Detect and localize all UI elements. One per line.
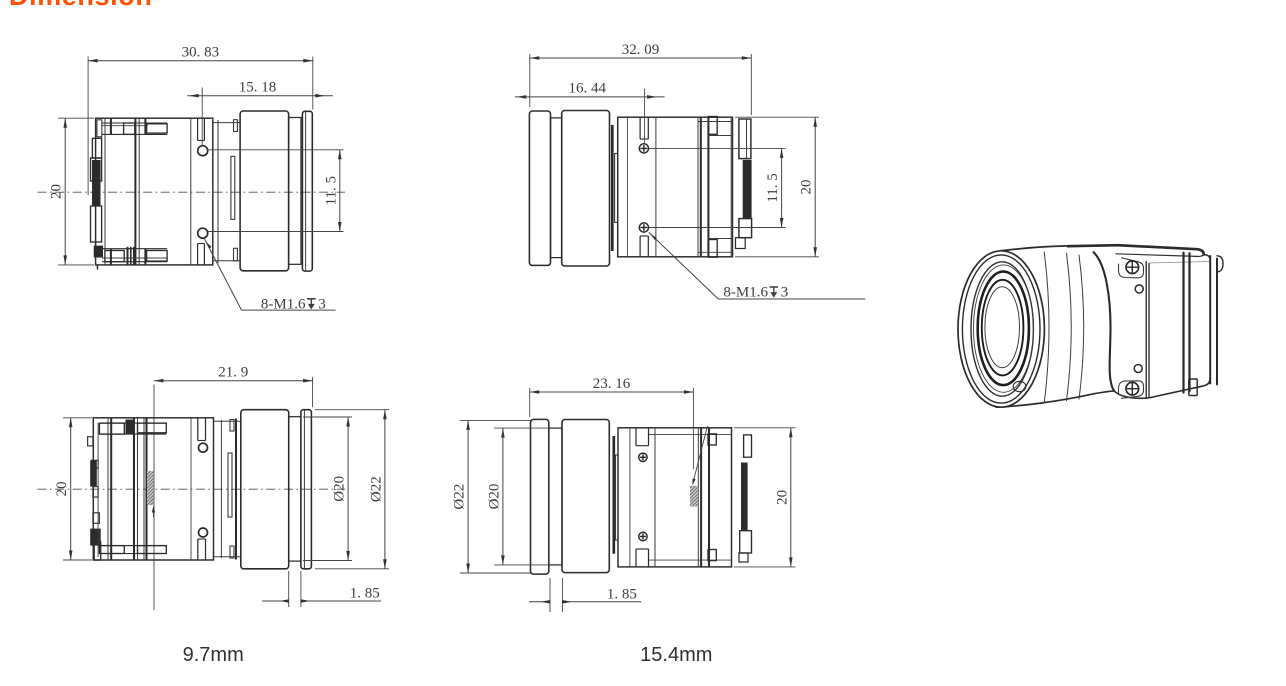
svg-text:11. 5: 11. 5: [323, 176, 339, 205]
svg-text:15. 18: 15. 18: [239, 80, 277, 96]
svg-text:21. 9: 21. 9: [218, 365, 248, 381]
svg-text:8-M1.6: 8-M1.6: [261, 296, 306, 312]
svg-text:20: 20: [54, 481, 70, 496]
svg-text:1. 85: 1. 85: [607, 586, 637, 602]
svg-text:Ø20: Ø20: [332, 476, 348, 502]
svg-text:15.4mm: 15.4mm: [640, 644, 712, 666]
svg-text:30. 83: 30. 83: [182, 45, 220, 61]
svg-text:20: 20: [774, 490, 790, 505]
svg-text:Ø22: Ø22: [452, 484, 468, 510]
svg-text:3: 3: [781, 285, 789, 301]
svg-text:Ø20: Ø20: [486, 484, 502, 510]
svg-text:Dimension: Dimension: [9, 0, 152, 11]
svg-text:23. 16: 23. 16: [593, 376, 631, 392]
svg-text:16. 44: 16. 44: [568, 81, 606, 97]
svg-text:8-M1.6: 8-M1.6: [723, 285, 768, 301]
svg-text:Ø22: Ø22: [368, 476, 384, 502]
svg-text:11. 5: 11. 5: [765, 173, 781, 202]
svg-text:9.7mm: 9.7mm: [183, 644, 244, 666]
svg-text:20: 20: [799, 180, 815, 195]
svg-text:20: 20: [49, 184, 65, 199]
svg-text:32. 09: 32. 09: [622, 42, 660, 58]
svg-text:3: 3: [318, 296, 326, 312]
svg-text:1. 85: 1. 85: [350, 586, 380, 602]
